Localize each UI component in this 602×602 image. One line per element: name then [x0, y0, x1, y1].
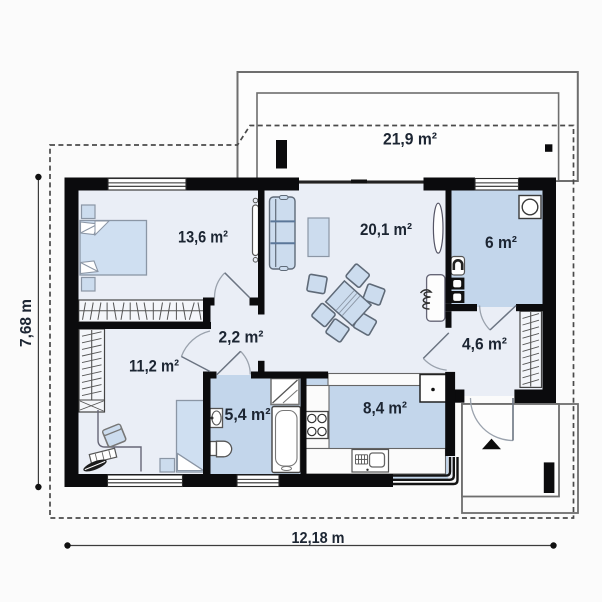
svg-text:4,6 m²: 4,6 m² [462, 335, 507, 354]
svg-text:20,1 m²: 20,1 m² [360, 220, 412, 239]
svg-text:12,18 m: 12,18 m [292, 530, 345, 547]
svg-text:7,68 m: 7,68 m [18, 299, 35, 347]
svg-text:2,2 m²: 2,2 m² [219, 328, 264, 347]
svg-text:13,6 m²: 13,6 m² [178, 228, 228, 247]
svg-text:21,9 m²: 21,9 m² [383, 131, 437, 149]
svg-text:8,4 m²: 8,4 m² [363, 399, 407, 418]
svg-text:6 m²: 6 m² [485, 233, 517, 252]
svg-text:5,4 m²: 5,4 m² [225, 405, 271, 424]
svg-text:11,2 m²: 11,2 m² [129, 357, 179, 376]
